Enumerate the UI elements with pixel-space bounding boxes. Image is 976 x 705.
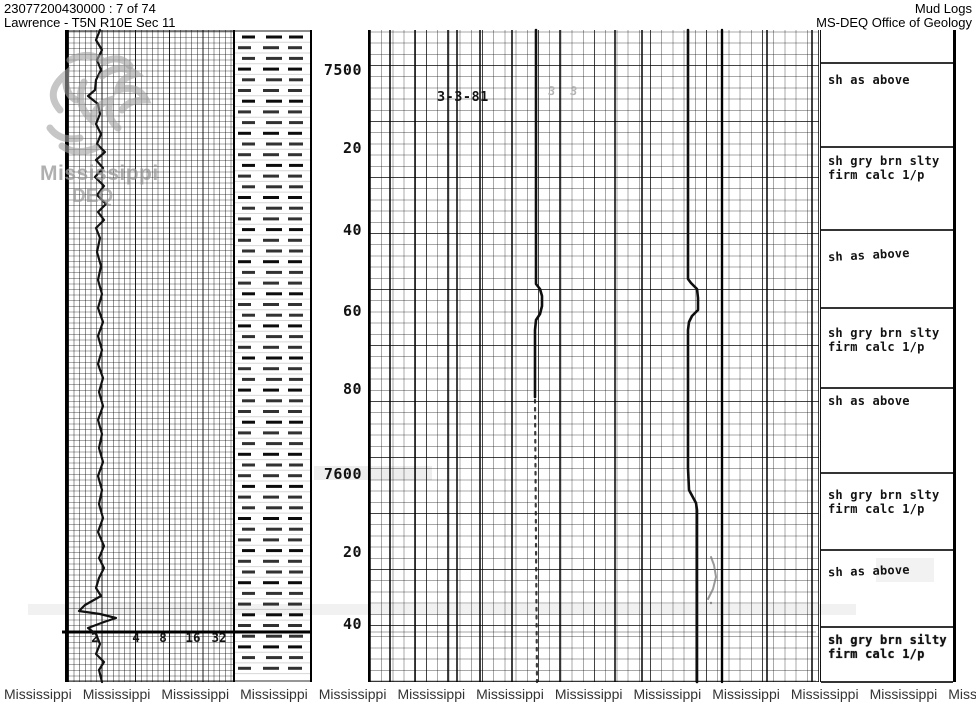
watermark-mississippi: Mississippi <box>40 162 159 186</box>
gas-scale-label: 16 <box>181 630 205 645</box>
description-line: sh as above <box>828 73 910 87</box>
description-cell-border <box>821 229 953 231</box>
description-cell: sh as above <box>828 73 910 87</box>
depth-label: 40 <box>310 615 362 633</box>
description-column: sh as abovesh gry brn sltyfirm calc 1/ps… <box>820 30 956 682</box>
bottom-watermark-item: Mississippi <box>240 686 308 702</box>
description-line: sh as above <box>828 246 910 264</box>
lithology-column <box>233 30 312 682</box>
description-cell: sh as above <box>828 246 910 264</box>
header-title: Mud Logs <box>816 2 972 16</box>
description-line: sh gry brn slty <box>828 488 939 502</box>
depth-label: 20 <box>310 543 362 561</box>
header-right: Mud Logs MS-DEQ Office of Geology <box>816 2 972 30</box>
gas-scale-label: 2 <box>83 630 107 645</box>
bottom-watermark-item: Mississippi <box>948 686 976 702</box>
description-cell: sh as above <box>828 563 910 580</box>
description-cell-border <box>821 549 953 551</box>
magnolia-logo-icon <box>28 48 178 163</box>
depth-label: 60 <box>310 302 362 320</box>
description-cell-border <box>821 472 953 474</box>
bottom-watermark-item: Mississippi <box>870 686 938 702</box>
description-cell-border <box>821 307 953 309</box>
description-cell: sh gry brn sltyfirm calc 1/p <box>828 154 939 182</box>
description-line: firm calc 1/p <box>828 502 939 516</box>
depth-label: 80 <box>310 380 362 398</box>
header-doc-id: 23077200430000 : 7 of 74 <box>4 2 176 16</box>
bottom-watermark-row: MississippiMississippiMississippiMississ… <box>4 686 976 702</box>
bottom-watermark-item: Mississippi <box>555 686 623 702</box>
description-line: sh gry brn slty <box>828 154 939 168</box>
depth-label: 20 <box>310 139 362 157</box>
gas-scale-label: 8 <box>151 630 175 645</box>
description-line: firm calc 1/p <box>828 647 947 661</box>
depth-label: 7600 <box>310 465 362 483</box>
depth-label: 40 <box>310 221 362 239</box>
deq-watermark: Mississippi DEQ <box>28 48 178 218</box>
description-cell-border <box>821 387 953 389</box>
description-cell: sh gry brn sltyfirm calc 1/p <box>828 326 939 354</box>
description-line: firm calc 1/p <box>828 340 939 354</box>
description-line: sh as above <box>828 394 910 408</box>
bottom-watermark-item: Mississippi <box>83 686 151 702</box>
gas-scale-label: 4 <box>124 630 148 645</box>
description-line: sh as above <box>828 563 910 580</box>
description-cell-border <box>821 146 953 148</box>
description-cell: sh gry brn siltyfirm calc 1/p <box>828 633 947 661</box>
bottom-watermark-item: Mississippi <box>161 686 229 702</box>
header-left: 23077200430000 : 7 of 74 Lawrence - T5N … <box>4 2 176 30</box>
date-annotation: 3-3-81 <box>437 89 489 105</box>
bottom-watermark-item: Mississippi <box>712 686 780 702</box>
description-cell-border <box>821 681 953 683</box>
depth-label: 7500 <box>310 61 362 79</box>
header-location: Lawrence - T5N R10E Sec 11 <box>4 16 176 30</box>
gas-scale-label: 32 <box>207 630 231 645</box>
description-line: sh gry brn slty <box>828 326 939 340</box>
bottom-watermark-item: Mississippi <box>476 686 544 702</box>
description-line: firm calc 1/p <box>828 168 939 182</box>
header-agency: MS-DEQ Office of Geology <box>816 16 972 30</box>
depth-column <box>312 30 368 682</box>
bottom-watermark-item: Mississippi <box>319 686 387 702</box>
description-cell-border <box>821 62 953 64</box>
gas-track-grid <box>368 30 819 682</box>
bottom-watermark-item: Mississippi <box>634 686 702 702</box>
description-cell-border <box>821 626 953 628</box>
bottom-watermark-item: Mississippi <box>397 686 465 702</box>
bottom-watermark-item: Mississippi <box>791 686 859 702</box>
description-cell: sh as above <box>828 394 910 408</box>
page-root: 23077200430000 : 7 of 74 Lawrence - T5N … <box>0 0 976 705</box>
watermark-deq: DEQ <box>72 186 113 208</box>
description-line: sh gry brn silty <box>828 633 947 647</box>
bottom-watermark-item: Mississippi <box>4 686 72 702</box>
description-cell: sh gry brn sltyfirm calc 1/p <box>828 488 939 516</box>
